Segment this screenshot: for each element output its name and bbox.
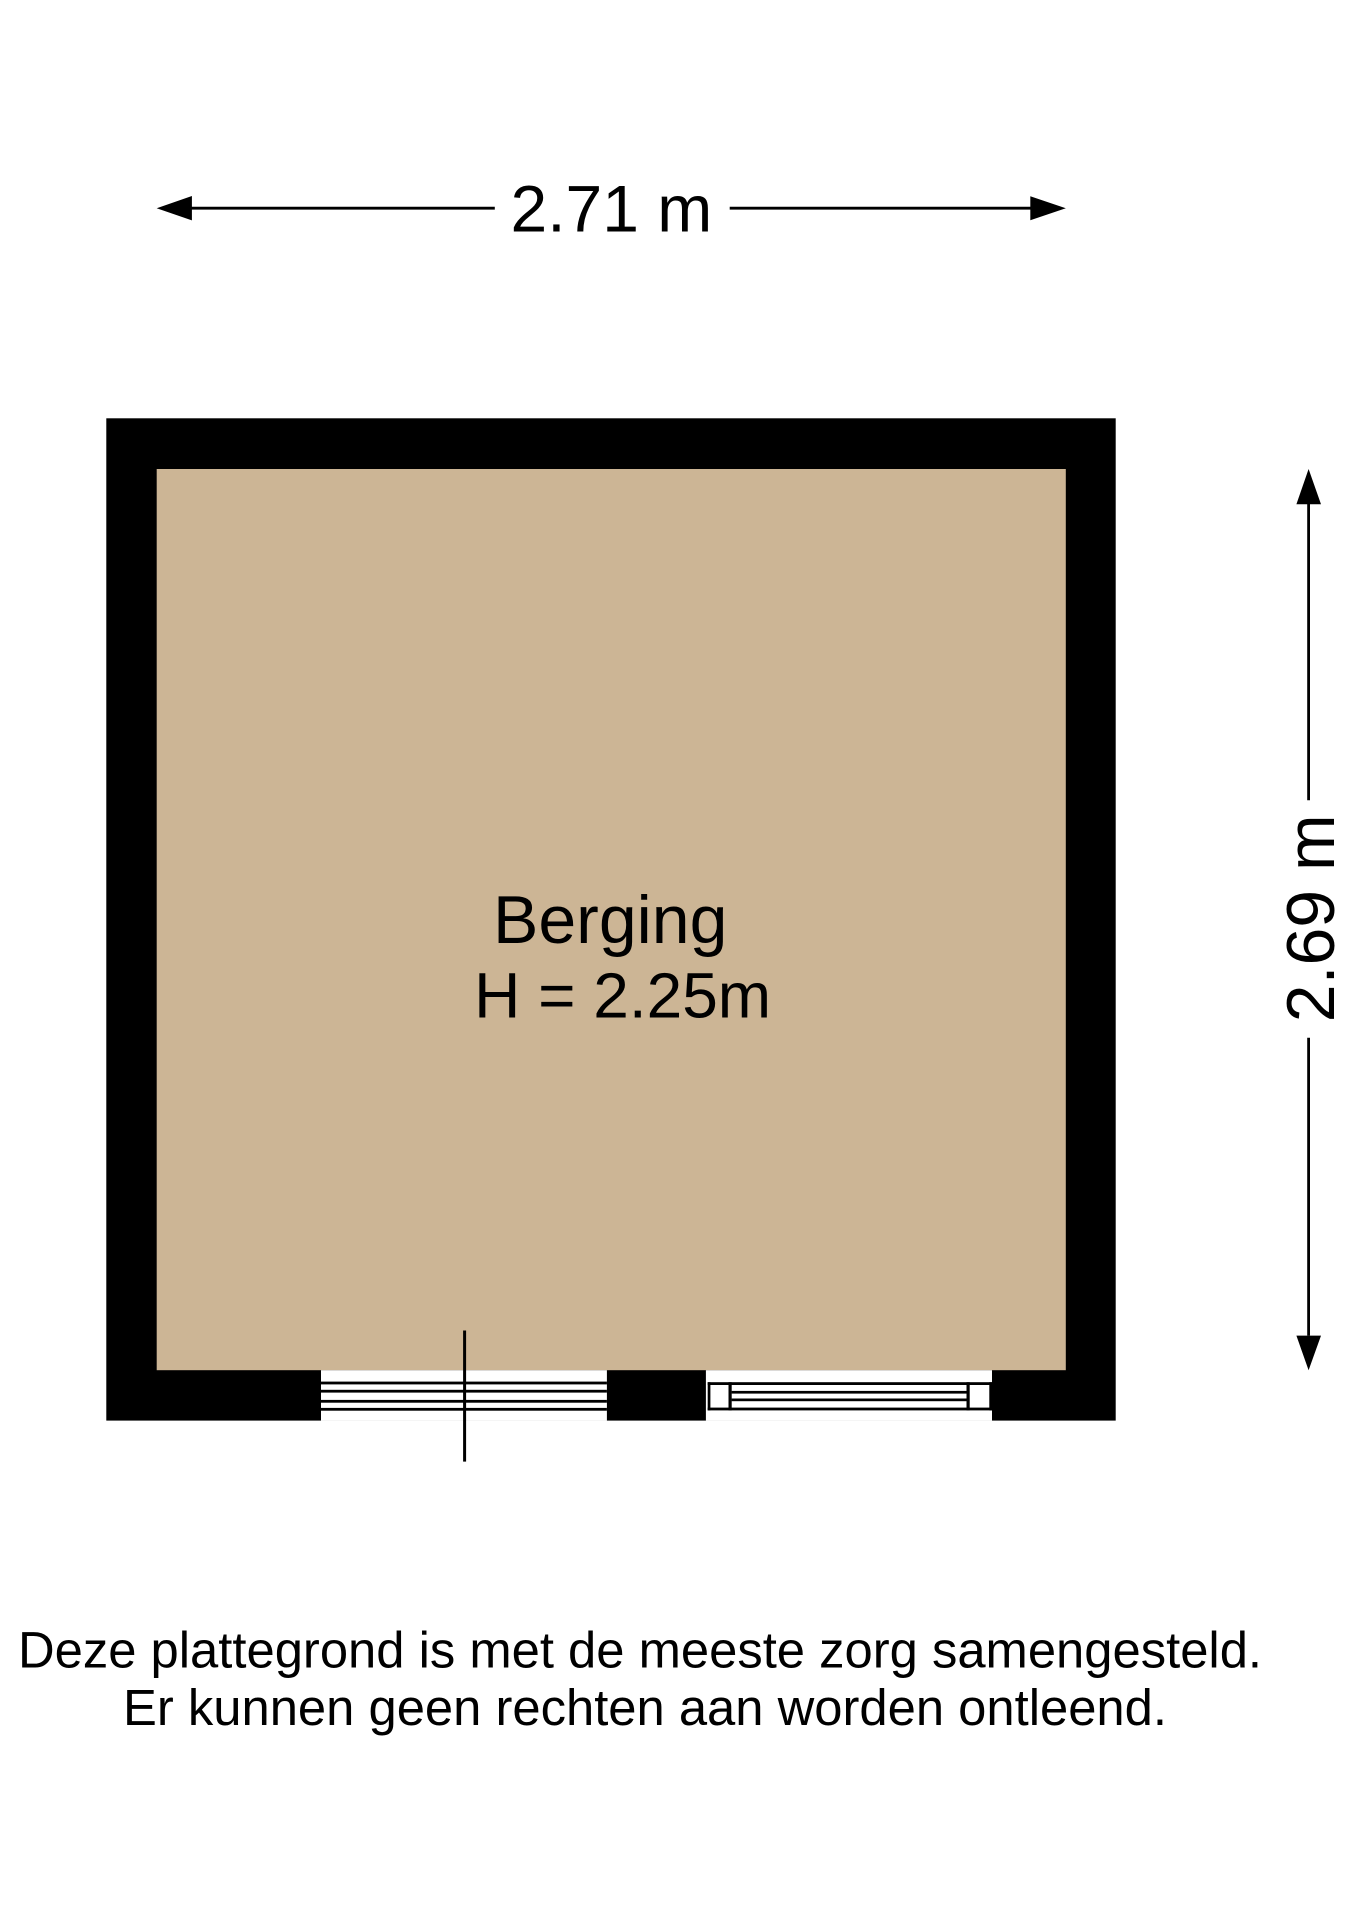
svg-text:Deze plattegrond is met de mee: Deze plattegrond is met de meeste zorg s… (18, 1622, 1262, 1679)
svg-text:2.69 m: 2.69 m (1273, 814, 1349, 1022)
svg-text:H = 2.25m: H = 2.25m (474, 960, 771, 1032)
svg-text:Berging: Berging (493, 882, 727, 958)
svg-text:Er kunnen geen rechten aan wor: Er kunnen geen rechten aan worden ontlee… (123, 1679, 1167, 1736)
svg-text:2.71 m: 2.71 m (511, 171, 713, 245)
